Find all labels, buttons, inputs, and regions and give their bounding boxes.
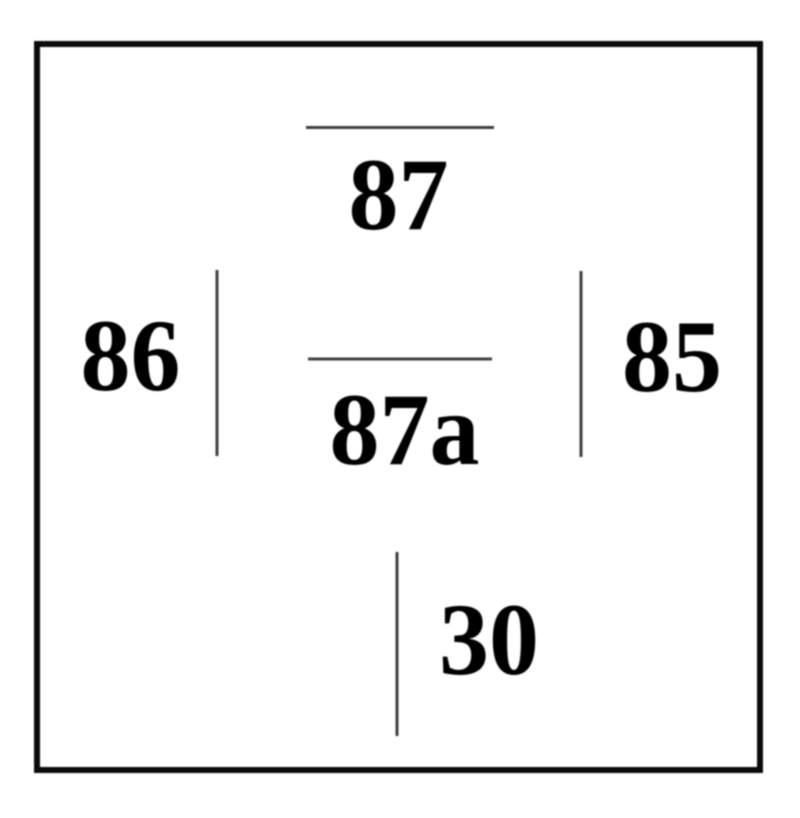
svg-text:87a: 87a [330,373,480,486]
svg-text:86: 86 [81,299,181,412]
svg-text:85: 85 [622,300,722,413]
svg-text:30: 30 [439,583,539,696]
svg-text:87: 87 [349,138,449,251]
